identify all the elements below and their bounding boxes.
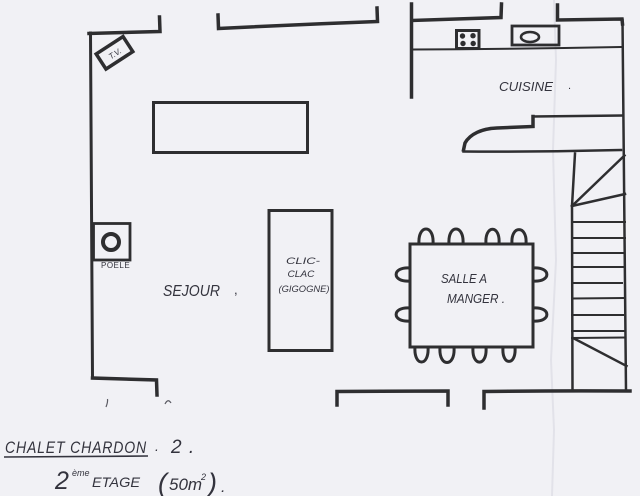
- svg-text:MANGER .: MANGER .: [447, 291, 505, 306]
- svg-text:.: .: [568, 80, 571, 92]
- svg-text:CLIC-: CLIC-: [286, 256, 320, 266]
- svg-text:POELE: POELE: [101, 261, 130, 270]
- svg-text:CUISINE: CUISINE: [499, 79, 553, 94]
- svg-text:,: ,: [234, 282, 238, 297]
- svg-text:2: 2: [200, 472, 206, 482]
- svg-text:ème: ème: [72, 468, 90, 478]
- svg-text:50m: 50m: [169, 475, 202, 494]
- svg-text:CHALET CHARDON: CHALET CHARDON: [5, 438, 147, 457]
- svg-text:SEJOUR: SEJOUR: [163, 283, 220, 300]
- svg-text:.: .: [221, 479, 225, 496]
- svg-text:2 .: 2 .: [170, 437, 195, 458]
- svg-text:(GIGOGNE): (GIGOGNE): [279, 284, 330, 294]
- svg-text:2: 2: [54, 467, 69, 495]
- svg-text:ETAGE: ETAGE: [92, 474, 141, 490]
- svg-text:.: .: [155, 438, 160, 454]
- svg-text:SALLE A: SALLE A: [441, 271, 487, 286]
- svg-text:CLAC: CLAC: [288, 269, 316, 279]
